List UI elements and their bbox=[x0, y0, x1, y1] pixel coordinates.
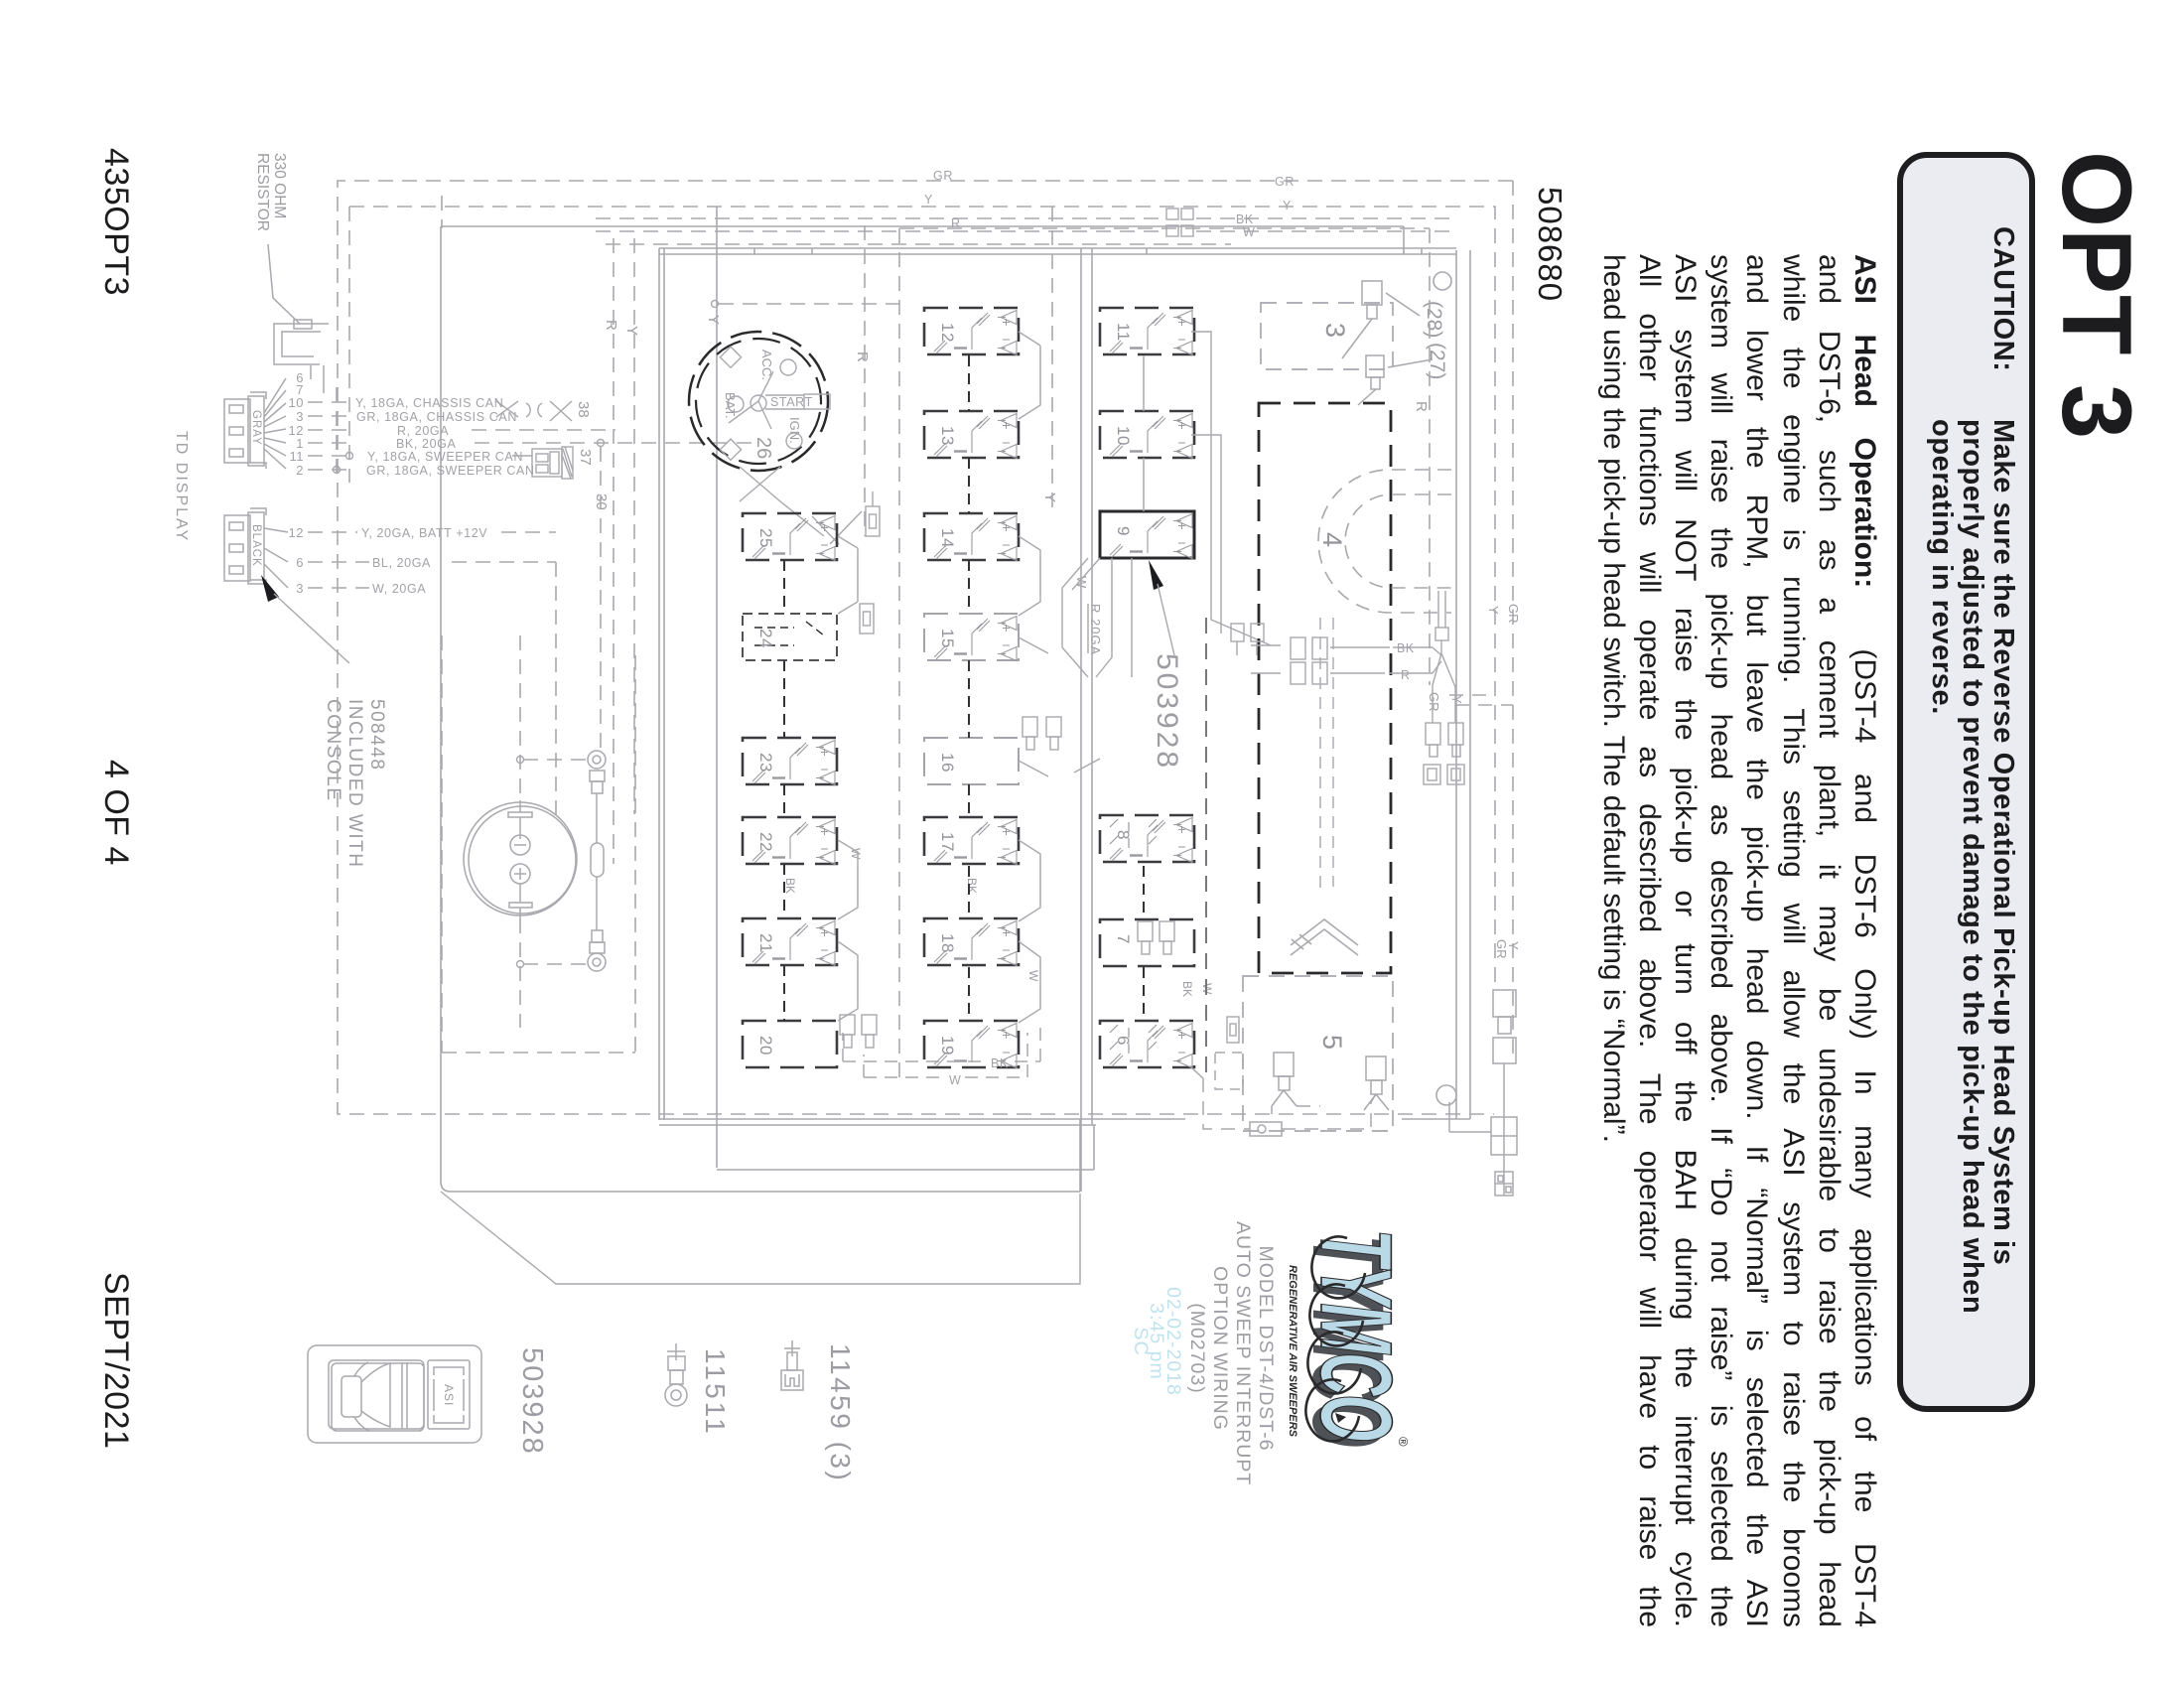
svg-text:Y, 20GA, BATT +12V: Y, 20GA, BATT +12V bbox=[361, 526, 487, 540]
svg-text:START: START bbox=[770, 395, 813, 409]
svg-text:R: R bbox=[951, 216, 961, 230]
svg-text:W, 20GA: W, 20GA bbox=[372, 582, 426, 596]
svg-text:GR, 18GA, SWEEPER CAN: GR, 18GA, SWEEPER CAN bbox=[366, 464, 535, 478]
svg-text:14: 14 bbox=[938, 528, 957, 548]
svg-text:12: 12 bbox=[938, 323, 957, 343]
svg-text:24: 24 bbox=[756, 629, 775, 648]
svg-text:23: 23 bbox=[756, 753, 775, 773]
svg-text:15: 15 bbox=[938, 629, 957, 648]
svg-text:R, 20GA: R, 20GA bbox=[397, 424, 449, 438]
svg-text:8: 8 bbox=[1114, 830, 1133, 840]
svg-text:6: 6 bbox=[1114, 1036, 1133, 1046]
svg-text:Y: Y bbox=[924, 193, 933, 207]
svg-text:BK: BK bbox=[1397, 641, 1415, 655]
svg-text:7: 7 bbox=[1114, 934, 1133, 944]
svg-text:5: 5 bbox=[1317, 1035, 1347, 1051]
svg-text:10: 10 bbox=[1114, 426, 1133, 446]
svg-text:16: 16 bbox=[938, 753, 957, 773]
svg-text:3: 3 bbox=[1320, 323, 1350, 339]
svg-text:BL, 20GA: BL, 20GA bbox=[372, 556, 431, 570]
svg-text:Y, 18GA, CHASSIS CAN: Y, 18GA, CHASSIS CAN bbox=[355, 396, 503, 410]
svg-text:GR: GR bbox=[933, 169, 953, 183]
svg-text:4: 4 bbox=[1317, 532, 1347, 548]
svg-text:20: 20 bbox=[756, 1036, 775, 1055]
svg-text:R: R bbox=[1401, 668, 1411, 682]
svg-text:22: 22 bbox=[756, 832, 775, 852]
svg-text:3: 3 bbox=[296, 581, 304, 596]
svg-text:10: 10 bbox=[289, 395, 304, 410]
svg-text:GR, 18GA, CHASSIS CAN: GR, 18GA, CHASSIS CAN bbox=[356, 410, 517, 424]
svg-text:2: 2 bbox=[296, 463, 304, 478]
svg-text:11: 11 bbox=[290, 449, 305, 464]
svg-text:17: 17 bbox=[938, 832, 957, 852]
svg-text:19: 19 bbox=[938, 1036, 957, 1055]
svg-text:REGENERATIVE AIR SWEEPERS: REGENERATIVE AIR SWEEPERS bbox=[1287, 1265, 1298, 1438]
svg-text:Y, 18GA, SWEEPER CAN: Y, 18GA, SWEEPER CAN bbox=[367, 450, 523, 464]
svg-text:GR: GR bbox=[1275, 175, 1295, 189]
svg-text:BK, 20GA: BK, 20GA bbox=[396, 437, 456, 451]
svg-text:®: ® bbox=[1396, 1437, 1411, 1447]
svg-text:W: W bbox=[1243, 225, 1255, 239]
svg-text:BK: BK bbox=[1236, 212, 1254, 226]
svg-text:6: 6 bbox=[296, 555, 304, 570]
svg-text:9: 9 bbox=[1114, 526, 1133, 536]
svg-text:11: 11 bbox=[1114, 323, 1133, 342]
svg-text:3: 3 bbox=[296, 409, 304, 424]
svg-text:W: W bbox=[949, 1073, 961, 1087]
svg-text:18: 18 bbox=[938, 933, 957, 953]
svg-text:13: 13 bbox=[938, 426, 957, 446]
svg-text:21: 21 bbox=[756, 933, 775, 953]
svg-text:12: 12 bbox=[289, 525, 304, 540]
svg-text:BK: BK bbox=[991, 1056, 1009, 1070]
svg-text:25: 25 bbox=[756, 528, 775, 548]
svg-text:Y: Y bbox=[1283, 199, 1292, 212]
